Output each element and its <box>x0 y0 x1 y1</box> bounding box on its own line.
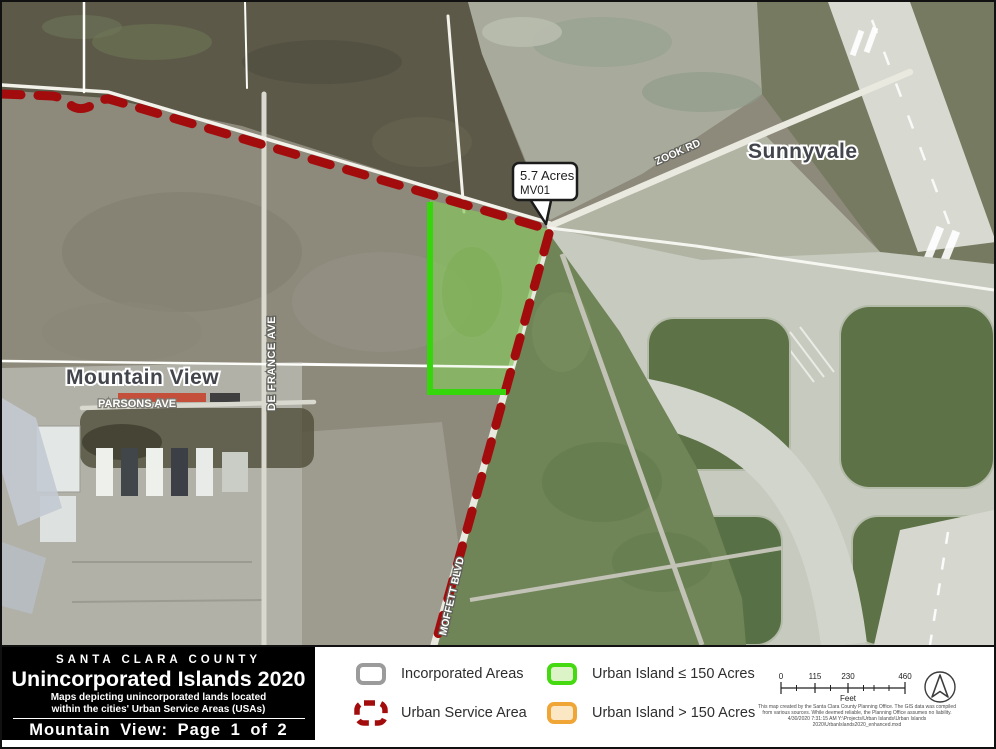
urban-island-small-swatch <box>547 663 577 685</box>
urban-service-area-swatch <box>352 699 390 727</box>
legend-item-island-large: Urban Island > 150 Acres <box>543 699 755 727</box>
legend-label: Urban Island > 150 Acres <box>592 705 755 721</box>
scale-bar-and-north-arrow: 0 115 230 460 Feet <box>762 651 995 707</box>
scale-unit-label: Feet <box>840 694 857 703</box>
title-divider <box>13 718 305 719</box>
road-label-parsons-ave: PARSONS AVE <box>98 398 176 410</box>
map-subtitle-line2: within the cities' Urban Service Areas (… <box>2 704 315 716</box>
page-label: Mountain View: Page 1 of 2 <box>2 721 315 740</box>
county-name: SANTA CLARA COUNTY <box>2 654 315 666</box>
legend-label: Incorporated Areas <box>401 666 524 682</box>
scale-tick-label: 230 <box>841 672 855 681</box>
callout-id: MV01 <box>520 185 550 197</box>
scale-bar: 0 115 230 460 Feet <box>779 672 912 703</box>
city-label-mountain-view: Mountain View <box>66 366 219 389</box>
legend-item-urban-service-area: Urban Service Area <box>352 699 527 727</box>
legend-label: Urban Service Area <box>401 705 527 721</box>
map-footer: SANTA CLARA COUNTY Unincorporated Island… <box>2 645 994 745</box>
map-title: Unincorporated Islands 2020 <box>2 667 315 692</box>
scale-tick-label: 460 <box>898 672 912 681</box>
scale-tick-label: 0 <box>779 672 784 681</box>
map-canvas: 5.7 Acres MV01 Mountain View Sunnyvale Z… <box>2 2 994 645</box>
legend-item-incorporated: Incorporated Areas <box>352 660 524 688</box>
credits-line3: 4/30/2020 7:31:15 AM Y:\Projects\Urban I… <box>754 716 960 728</box>
scale-tick-label: 115 <box>809 672 822 681</box>
parcel-texture <box>442 247 502 337</box>
callout-acres: 5.7 Acres <box>520 168 575 183</box>
map-title-block: SANTA CLARA COUNTY Unincorporated Island… <box>2 647 315 740</box>
map-subtitle-line1: Maps depicting unincorporated lands loca… <box>2 692 315 704</box>
north-arrow-icon <box>925 672 955 702</box>
map-page: 5.7 Acres MV01 Mountain View Sunnyvale Z… <box>0 0 996 749</box>
urban-island-large-swatch <box>547 702 577 724</box>
city-label-sunnyvale: Sunnyvale <box>748 140 858 163</box>
legend-label: Urban Island ≤ 150 Acres <box>592 666 755 682</box>
incorporated-areas-swatch <box>356 663 386 685</box>
legend-item-island-small: Urban Island ≤ 150 Acres <box>543 660 755 688</box>
map-view: 5.7 Acres MV01 Mountain View Sunnyvale Z… <box>2 2 994 645</box>
road-label-de-france-ave: DE FRANCE AVE <box>266 316 278 411</box>
map-credits: This map created by the Santa Clara Coun… <box>754 704 960 728</box>
